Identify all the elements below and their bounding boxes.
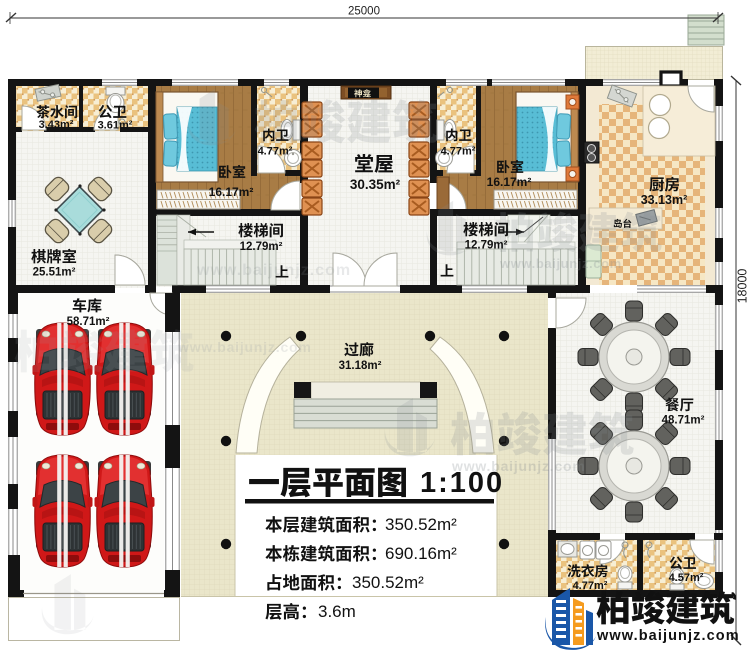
svg-text:www.baijunjz.com: www.baijunjz.com bbox=[177, 339, 312, 355]
svg-text:12.79m²: 12.79m² bbox=[465, 240, 508, 252]
svg-text:12.79m²: 12.79m² bbox=[240, 241, 283, 253]
svg-text:58.71m²: 58.71m² bbox=[67, 316, 110, 328]
svg-text:www.baijunjz.com: www.baijunjz.com bbox=[596, 628, 740, 644]
svg-text:4.57m²: 4.57m² bbox=[669, 572, 704, 584]
svg-text:4.77m²: 4.77m² bbox=[258, 146, 293, 158]
svg-text:16.17m²: 16.17m² bbox=[209, 185, 254, 199]
svg-text:www.baijunjz.com: www.baijunjz.com bbox=[196, 262, 351, 279]
svg-text:33.13m²: 33.13m² bbox=[641, 193, 688, 207]
svg-text:31.18m²: 31.18m² bbox=[339, 360, 382, 372]
svg-text:18000: 18000 bbox=[736, 269, 750, 304]
svg-text:4.77m²: 4.77m² bbox=[573, 580, 608, 592]
svg-text:25.51m²: 25.51m² bbox=[33, 267, 76, 279]
svg-text:3.43m²: 3.43m² bbox=[39, 119, 74, 131]
svg-text:16.17m²: 16.17m² bbox=[487, 175, 532, 189]
svg-text:48.71m²: 48.71m² bbox=[662, 415, 705, 427]
svg-text:350.52m²: 350.52m² bbox=[352, 573, 424, 592]
svg-text:30.35m²: 30.35m² bbox=[350, 177, 401, 192]
svg-text:3.6m: 3.6m bbox=[318, 602, 356, 621]
svg-text:690.16m²: 690.16m² bbox=[385, 544, 457, 563]
svg-text:www.baijunjz.com: www.baijunjz.com bbox=[499, 256, 622, 271]
svg-text:1:100: 1:100 bbox=[420, 467, 504, 499]
svg-text:4.77m²: 4.77m² bbox=[441, 146, 476, 158]
svg-text:3.61m²: 3.61m² bbox=[98, 120, 133, 132]
svg-text:350.52m²: 350.52m² bbox=[385, 515, 457, 534]
svg-text:25000: 25000 bbox=[348, 6, 380, 18]
